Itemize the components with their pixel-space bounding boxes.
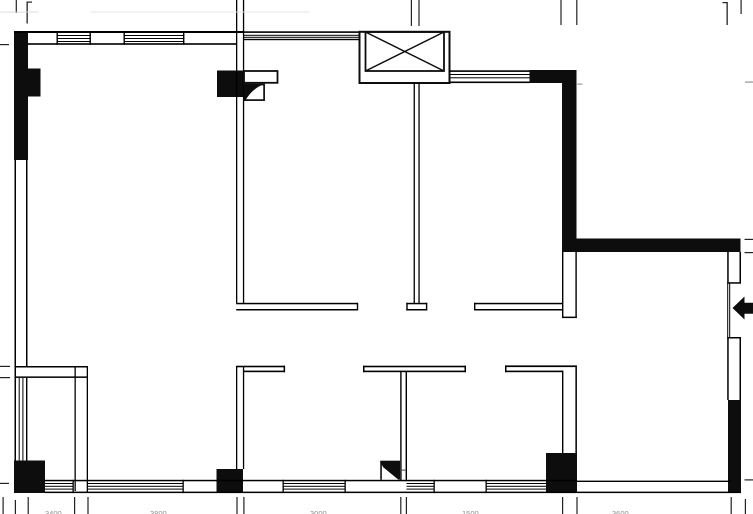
svg-text:3400: 3400 (45, 509, 62, 514)
svg-text:1500: 1500 (462, 509, 479, 514)
svg-text:3000: 3000 (310, 509, 327, 514)
svg-text:3600: 3600 (612, 509, 629, 514)
svg-text:3800: 3800 (150, 509, 167, 514)
